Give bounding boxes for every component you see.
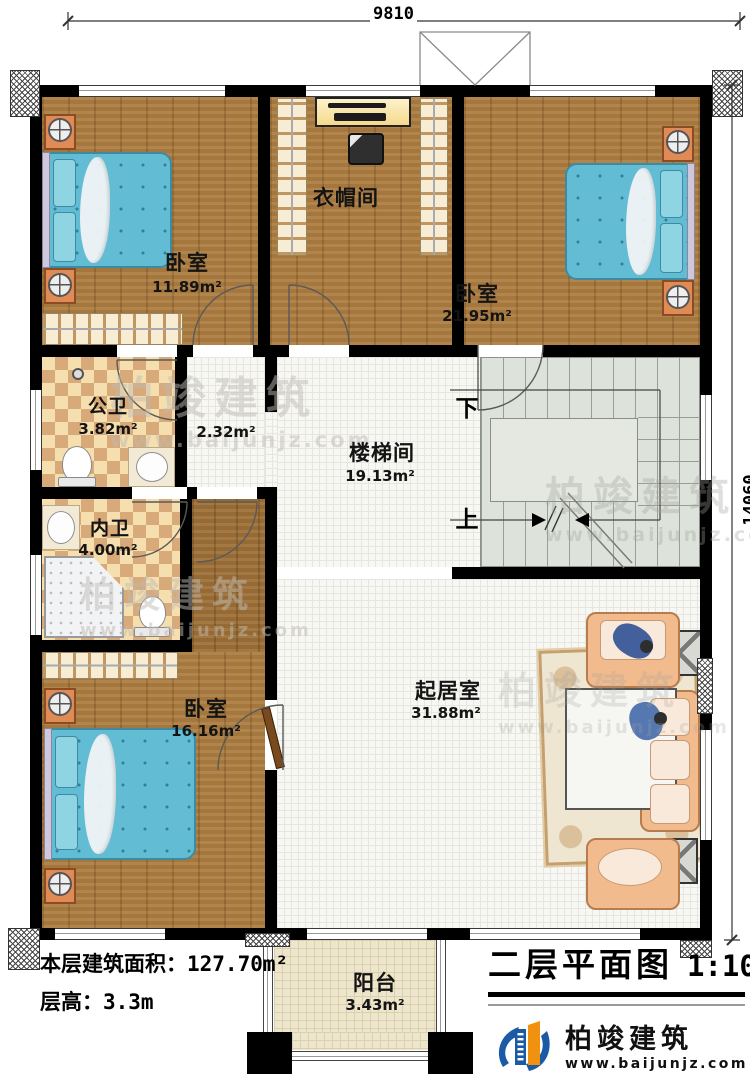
window xyxy=(30,390,42,470)
room-label-private-bath: 内卫 xyxy=(90,514,130,541)
sink-icon xyxy=(47,511,75,544)
floor-area-note: 本层建筑面积：127.70m² xyxy=(40,948,288,978)
balcony-floor-edge xyxy=(292,1032,428,1050)
brand-logo: 柏竣建筑 www.baijunjz.com xyxy=(493,1012,748,1076)
person-head xyxy=(654,712,667,725)
floor-height-label: 层高： xyxy=(40,990,103,1014)
room-label-balcony: 阳台 xyxy=(353,967,397,997)
window xyxy=(30,555,42,635)
dresser-item xyxy=(334,113,386,121)
corridor-opening-floor xyxy=(265,412,277,487)
dresser-item xyxy=(328,103,386,108)
room-label-living-room: 起居室 xyxy=(415,675,481,705)
window xyxy=(306,85,420,97)
lamp-icon xyxy=(48,692,72,716)
room-area-stair-hall: 19.13m² xyxy=(345,467,415,485)
room-area-private-bath: 4.00m² xyxy=(78,541,137,559)
toilet-tank xyxy=(134,627,170,637)
pendant-lamp-icon xyxy=(72,368,84,380)
lamp-icon xyxy=(666,285,690,309)
mini-hall-floor xyxy=(192,499,265,652)
wall-pier-hatch xyxy=(10,70,40,117)
pillow xyxy=(55,794,78,850)
room-label-stair-hall: 楼梯间 xyxy=(349,437,415,467)
room-area-bedroom-bottom: 16.16m² xyxy=(171,722,241,740)
room-label-bedroom-top-right: 卧室 xyxy=(455,278,499,308)
wall-pier-hatch xyxy=(697,658,713,714)
pillow xyxy=(53,159,76,207)
window xyxy=(79,85,225,97)
room-label-cloakroom: 衣帽间 xyxy=(313,182,379,212)
floor-area-label: 本层建筑面积： xyxy=(40,952,187,976)
room-area-balcony: 3.43m² xyxy=(345,996,404,1014)
plan-scale: 1:100 xyxy=(687,949,750,983)
toilet-icon xyxy=(139,596,166,629)
room-area-corridor: 2.32m² xyxy=(196,423,255,441)
title-block: 二层平面图1:100 xyxy=(488,938,745,1006)
sofa-cushion xyxy=(650,784,690,824)
pillow xyxy=(55,736,78,788)
room-label-public-bath: 公卫 xyxy=(88,392,128,419)
wall-pier-hatch xyxy=(712,70,743,117)
pillow xyxy=(53,212,76,262)
bed-headboard xyxy=(44,728,52,860)
plan-title: 二层平面图 xyxy=(488,945,673,984)
wardrobe xyxy=(42,652,178,679)
lamp-icon xyxy=(666,130,690,154)
floor-height-note: 层高：3.3m xyxy=(40,986,154,1016)
dresser xyxy=(315,97,411,127)
wardrobe-rack-left xyxy=(277,98,307,256)
lamp-icon xyxy=(48,273,72,297)
brand-logo-icon xyxy=(493,1012,555,1076)
sliding-door xyxy=(307,928,427,940)
toilet-tank xyxy=(58,477,96,487)
bay-window-icon xyxy=(420,32,530,85)
room-area-bedroom-top-right: 21.95m² xyxy=(442,307,512,325)
sofa-cushion xyxy=(650,740,690,780)
balcony-rail-right xyxy=(436,940,447,1032)
lamp-icon xyxy=(48,118,72,142)
title-rule-thick xyxy=(488,992,745,997)
wall-pier-hatch xyxy=(245,933,290,947)
stairs-landing xyxy=(490,418,638,502)
bed-headboard xyxy=(687,163,695,280)
brand-name: 柏竣建筑 xyxy=(565,1017,748,1056)
window xyxy=(700,395,712,480)
chair xyxy=(348,133,384,165)
pillow xyxy=(660,223,683,273)
balcony-rail-bottom xyxy=(292,1050,428,1061)
stairs-treads-horizontal xyxy=(638,410,700,506)
wardrobe-rack-right xyxy=(420,98,448,256)
window xyxy=(700,730,712,840)
title-rule-thin xyxy=(488,1004,745,1006)
room-label-bedroom-top-left: 卧室 xyxy=(165,247,209,277)
balcony-post xyxy=(247,1032,292,1074)
stairs-down-label: 下 xyxy=(456,389,479,423)
floor-area-value: 127.70m² xyxy=(187,952,288,976)
floor-plan: 柏竣建筑 www.baijunjz.com 柏竣建筑 www.baijunjz.… xyxy=(0,0,750,1088)
dimension-line-right xyxy=(724,80,740,945)
stairs-up-label: 上 xyxy=(456,500,479,534)
wardrobe xyxy=(42,313,183,345)
floor-height-value: 3.3m xyxy=(103,990,154,1014)
window xyxy=(55,928,165,940)
pillow xyxy=(660,170,683,218)
room-area-public-bath: 3.82m² xyxy=(78,420,137,438)
dimension-top: 9810 xyxy=(370,4,417,24)
wall-pier-hatch xyxy=(8,928,40,970)
bed-headboard xyxy=(42,152,50,268)
brand-url: www.baijunjz.com xyxy=(565,1056,748,1072)
dimension-right: 14060 xyxy=(741,471,750,528)
lamp-icon xyxy=(48,872,72,896)
armchair-cushion xyxy=(598,848,662,886)
room-area-living-room: 31.88m² xyxy=(411,704,481,722)
room-area-bedroom-top-left: 11.89m² xyxy=(152,278,222,296)
corridor-floor xyxy=(187,357,265,487)
room-label-bedroom-bottom: 卧室 xyxy=(184,693,228,723)
person-head xyxy=(640,640,653,653)
window xyxy=(530,85,655,97)
balcony-post xyxy=(428,1032,473,1074)
sink-icon xyxy=(136,452,168,482)
